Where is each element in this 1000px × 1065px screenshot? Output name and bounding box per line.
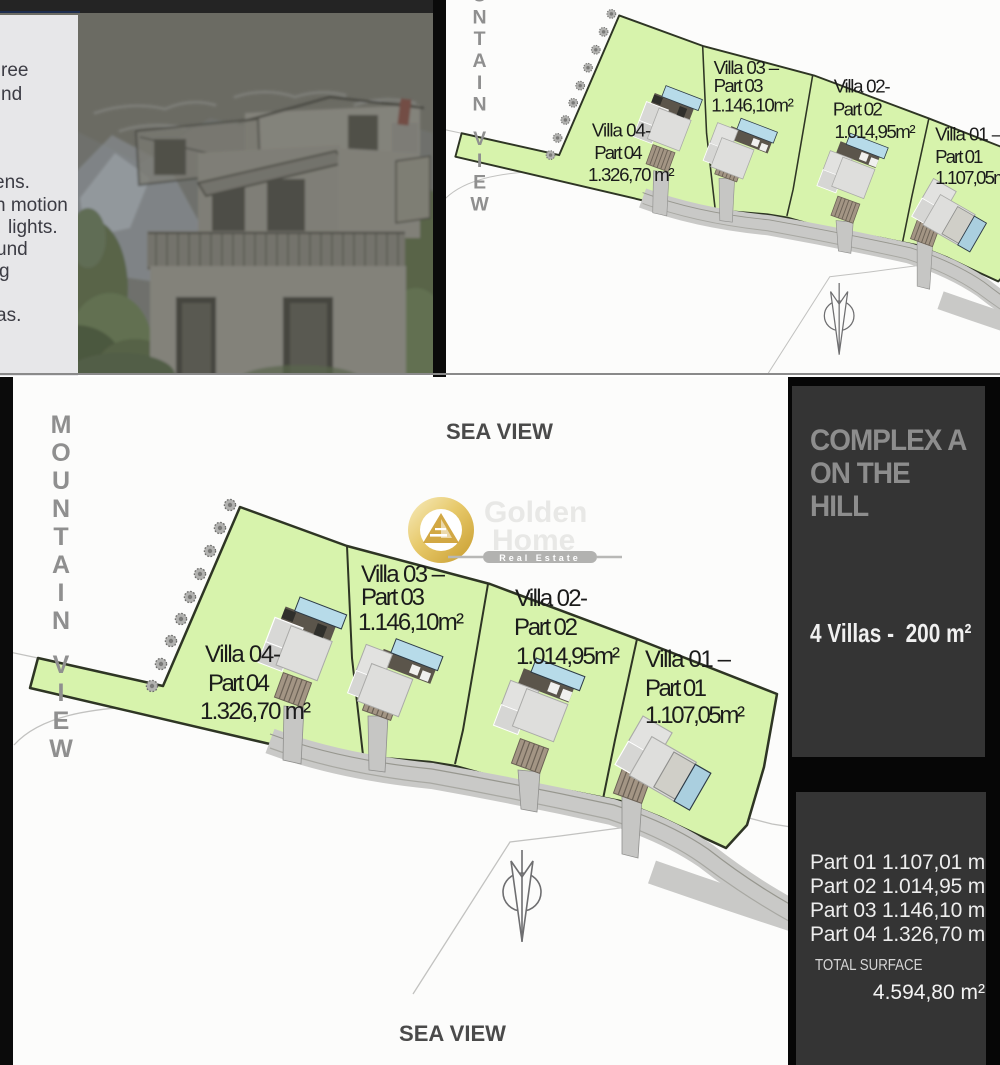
svg-text:Real Estate: Real Estate <box>499 553 581 563</box>
